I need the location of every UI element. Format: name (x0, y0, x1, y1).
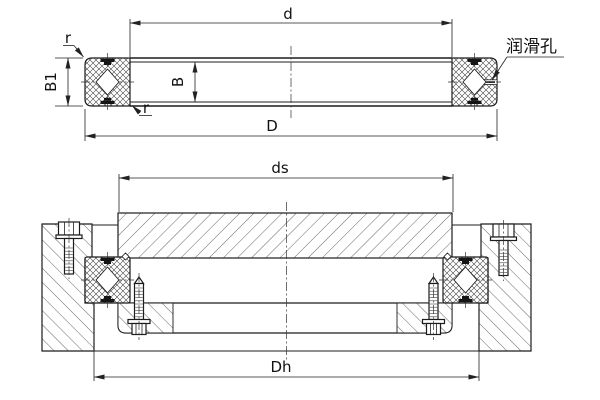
seal-pad-bottom-right-2 (471, 98, 478, 101)
dim-ds-label: ds (271, 159, 289, 177)
dim-B1-label: B1 (42, 72, 60, 92)
mounted-seal-top-left-2 (104, 261, 111, 264)
bearing-engineering-drawing: d D B1 B r r (0, 0, 600, 400)
seal-pad-top-left (101, 59, 115, 62)
mounted-seal-top-right (459, 258, 473, 261)
seal-pad-top-left-2 (104, 62, 111, 65)
mounted-seal-bottom-left-2 (104, 296, 111, 299)
dim-ds: ds (119, 159, 453, 212)
dim-B1: B1 (42, 58, 83, 106)
seal-pad-top-right-2 (471, 62, 478, 65)
top-section-view: d D B1 B r r (42, 5, 564, 141)
seal-pad-top-right (468, 59, 482, 62)
mounted-seal-bottom-left (101, 299, 115, 302)
seal-pad-bottom-left-2 (104, 98, 111, 101)
mounted-seal-bottom-right-2 (462, 296, 469, 299)
dim-d-label: d (283, 5, 293, 23)
dim-Dh-label: Dh (270, 358, 291, 376)
fillet-r-top-leader (74, 46, 84, 58)
fillet-r-top-label: r (65, 29, 72, 47)
lubrication-hole-label: 润滑孔 (506, 37, 557, 57)
drawing-svg: d D B1 B r r (0, 0, 600, 400)
dim-B-label: B (169, 77, 187, 87)
seal-pad-bottom-right (468, 101, 482, 104)
dim-D-label: D (266, 117, 278, 135)
mounted-seal-bottom-right (459, 299, 473, 302)
fillet-r-bottom-label: r (143, 99, 150, 117)
seal-pad-bottom-left (101, 101, 115, 104)
mounted-seal-top-left (101, 258, 115, 261)
fillet-r-top: r (63, 29, 84, 57)
mounting-section-view: ds Dh (42, 159, 531, 381)
lubrication-hole-callout: 润滑孔 (492, 37, 564, 80)
dim-B: B (169, 62, 195, 102)
shaft-flange (118, 213, 452, 258)
mounted-seal-top-right-2 (462, 261, 469, 264)
lower-presser-ring-section-right (397, 303, 452, 333)
